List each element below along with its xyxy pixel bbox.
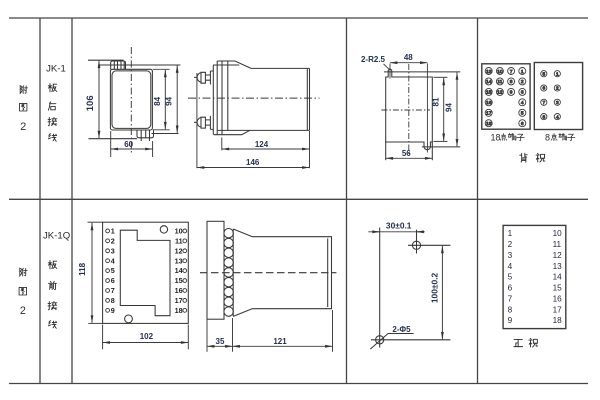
svg-text:9: 9 xyxy=(510,90,513,96)
svg-text:18: 18 xyxy=(175,306,183,315)
svg-text:30±0.1: 30±0.1 xyxy=(386,220,412,230)
svg-text:6: 6 xyxy=(111,276,115,285)
svg-text:10: 10 xyxy=(553,229,563,238)
svg-text:17: 17 xyxy=(175,296,183,305)
svg-text:4: 4 xyxy=(111,256,115,265)
svg-text:15: 15 xyxy=(486,90,492,96)
svg-text:5: 5 xyxy=(111,266,115,275)
svg-text:94: 94 xyxy=(445,103,454,112)
svg-text:2: 2 xyxy=(556,86,559,92)
svg-text:17: 17 xyxy=(553,305,563,314)
svg-text:56: 56 xyxy=(402,149,411,158)
svg-text:35: 35 xyxy=(216,337,225,346)
svg-text:14: 14 xyxy=(175,266,183,275)
svg-text:106: 106 xyxy=(85,95,96,111)
svg-text:100±0.2: 100±0.2 xyxy=(429,273,439,304)
svg-text:3: 3 xyxy=(556,100,559,106)
svg-text:146: 146 xyxy=(246,158,260,167)
svg-text:6: 6 xyxy=(542,86,545,92)
svg-text:15: 15 xyxy=(553,284,563,293)
svg-text:8: 8 xyxy=(510,79,513,85)
svg-text:2: 2 xyxy=(20,121,26,133)
svg-text:4: 4 xyxy=(521,100,524,106)
svg-text:10: 10 xyxy=(497,69,503,75)
svg-text:8: 8 xyxy=(542,114,545,120)
svg-text:11: 11 xyxy=(175,236,183,245)
svg-text:5: 5 xyxy=(508,273,513,282)
svg-text:8: 8 xyxy=(508,305,513,314)
svg-text:3: 3 xyxy=(508,251,513,260)
svg-text:4: 4 xyxy=(508,262,513,271)
svg-text:1: 1 xyxy=(111,227,115,236)
svg-text:18: 18 xyxy=(490,133,500,143)
svg-text:7: 7 xyxy=(510,69,513,75)
svg-text:13: 13 xyxy=(486,69,492,75)
svg-text:94: 94 xyxy=(164,96,173,105)
svg-text:14: 14 xyxy=(553,273,563,282)
svg-text:8: 8 xyxy=(111,296,115,305)
svg-text:60: 60 xyxy=(124,140,133,149)
svg-text:2-R2.5: 2-R2.5 xyxy=(361,55,386,64)
svg-text:10: 10 xyxy=(175,227,183,236)
svg-text:9: 9 xyxy=(508,316,513,325)
svg-text:12: 12 xyxy=(553,251,563,260)
svg-text:102: 102 xyxy=(140,332,154,341)
svg-text:5: 5 xyxy=(521,111,524,117)
svg-text:6: 6 xyxy=(508,284,513,293)
svg-text:81: 81 xyxy=(432,97,441,106)
svg-text:2: 2 xyxy=(20,305,26,317)
svg-text:7: 7 xyxy=(508,294,513,303)
svg-text:5: 5 xyxy=(542,71,545,77)
svg-text:7: 7 xyxy=(542,100,545,106)
svg-text:18: 18 xyxy=(553,316,563,325)
svg-text:11: 11 xyxy=(553,240,562,249)
svg-text:2: 2 xyxy=(508,240,513,249)
svg-text:84: 84 xyxy=(153,96,162,105)
svg-text:2: 2 xyxy=(111,236,115,245)
svg-text:9: 9 xyxy=(111,306,115,315)
svg-text:JK-1Q: JK-1Q xyxy=(43,230,70,241)
svg-text:124: 124 xyxy=(255,140,269,149)
svg-text:1: 1 xyxy=(521,69,524,75)
svg-text:3: 3 xyxy=(521,90,524,96)
svg-text:16: 16 xyxy=(553,294,563,303)
svg-text:13: 13 xyxy=(553,262,563,271)
svg-text:13: 13 xyxy=(175,256,183,265)
svg-text:6: 6 xyxy=(521,121,524,127)
svg-text:2: 2 xyxy=(521,79,524,85)
svg-text:121: 121 xyxy=(273,337,287,346)
svg-text:12: 12 xyxy=(175,246,183,255)
svg-text:12: 12 xyxy=(497,90,503,96)
svg-text:1: 1 xyxy=(508,229,513,238)
svg-text:2-Φ5: 2-Φ5 xyxy=(392,325,411,334)
svg-text:11: 11 xyxy=(497,79,502,85)
svg-text:18: 18 xyxy=(486,121,492,127)
svg-text:7: 7 xyxy=(111,286,115,295)
svg-text:16: 16 xyxy=(175,286,183,295)
svg-text:118: 118 xyxy=(78,262,87,275)
svg-text:1: 1 xyxy=(556,71,559,77)
svg-text:4: 4 xyxy=(556,114,559,120)
svg-text:8: 8 xyxy=(545,133,550,143)
svg-text:16: 16 xyxy=(486,100,492,106)
svg-text:48: 48 xyxy=(404,53,413,62)
svg-text:17: 17 xyxy=(486,111,492,117)
svg-text:15: 15 xyxy=(175,276,183,285)
svg-text:3: 3 xyxy=(111,246,115,255)
svg-text:14: 14 xyxy=(486,79,492,85)
svg-text:JK-1: JK-1 xyxy=(46,64,66,75)
